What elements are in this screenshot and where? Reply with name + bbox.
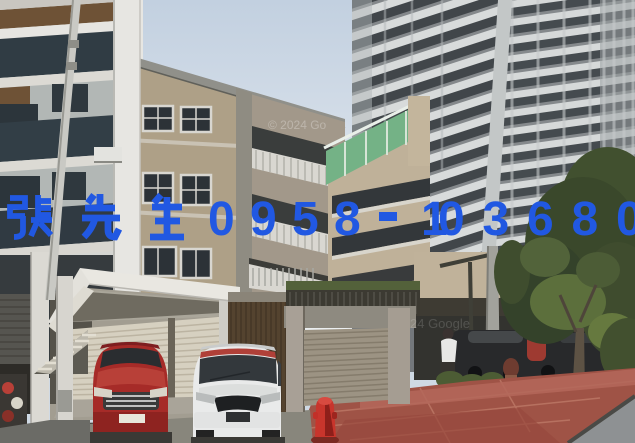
svg-text:03680: 03680 xyxy=(438,193,635,246)
svg-text:0958: 0958 xyxy=(208,193,376,246)
svg-text:© 2024 Go: © 2024 Go xyxy=(268,118,327,132)
svg-text:24 Google: 24 Google xyxy=(410,316,470,331)
